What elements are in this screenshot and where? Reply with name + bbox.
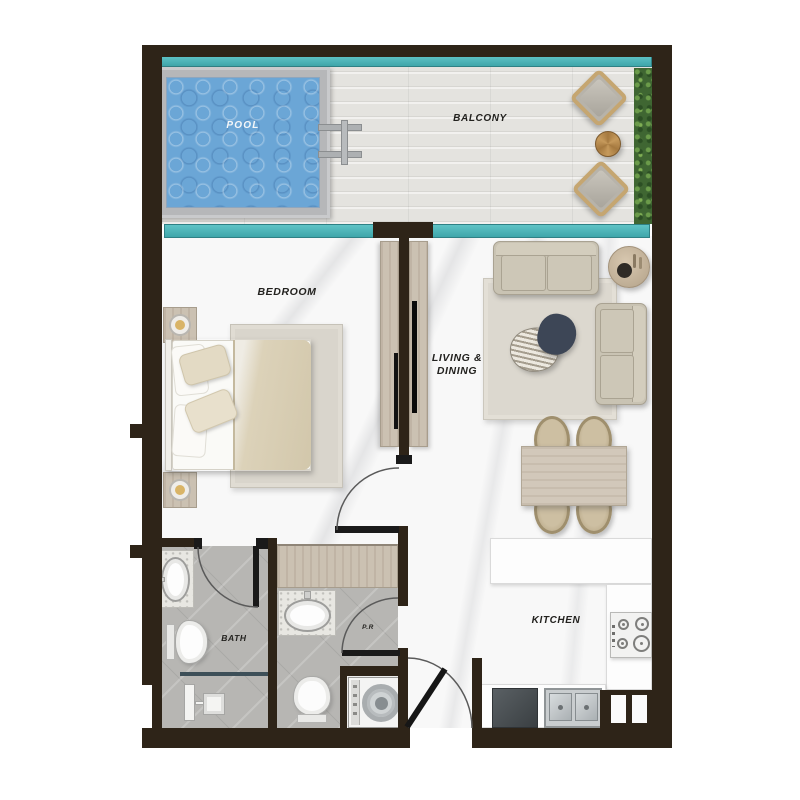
- armchair-cushion: [581, 169, 621, 209]
- wall-right: [652, 45, 672, 748]
- washer-control-panel: [351, 680, 360, 725]
- burner: [635, 617, 649, 631]
- pool-label: POOL: [186, 120, 300, 132]
- sofa-right: [595, 303, 647, 405]
- pool-ladder-bar-bottom: [318, 151, 362, 158]
- toilet-tank: [166, 624, 175, 660]
- cooktop-knobs: [612, 625, 615, 647]
- wall-left-lower: [152, 685, 162, 730]
- pr-door-leaf: [342, 650, 400, 656]
- bath-label: BATH: [204, 633, 264, 643]
- bedroom-wardrobe: [380, 241, 399, 447]
- wall-left-pilaster-top: [130, 424, 143, 438]
- entry-door-jamb: [472, 658, 482, 728]
- bed-duvet: [233, 340, 311, 470]
- shower-fixture: [184, 684, 226, 722]
- shaft-slot: [611, 695, 626, 723]
- wall-bedroom-living-cap: [396, 455, 412, 464]
- bedroom-label: BEDROOM: [227, 286, 347, 299]
- table-lamp: [169, 314, 191, 336]
- pool-ladder-rail: [341, 120, 348, 165]
- pool-ladder-bar-top: [318, 124, 362, 131]
- wall-washer-right: [398, 666, 408, 728]
- bedroom-door-leaf: [335, 526, 399, 533]
- shower-head: [203, 693, 225, 715]
- pr-sink: [284, 599, 331, 632]
- nightstand-top: [163, 307, 197, 343]
- dining-table: [521, 446, 627, 506]
- pr-faucet: [304, 591, 311, 599]
- balcony-side-table: [595, 131, 621, 157]
- tv-console: [409, 241, 428, 447]
- sofa-cushion: [600, 355, 634, 399]
- burner: [633, 635, 650, 652]
- kitchen-label: KITCHEN: [506, 615, 606, 627]
- pr-vanity-counter: [278, 590, 336, 636]
- kitchen-shaft: [600, 690, 652, 728]
- bed: [165, 339, 311, 471]
- kitchen-counter-top: [490, 538, 652, 584]
- washer-buttons: [353, 685, 357, 715]
- bath-door-leaf: [253, 546, 259, 607]
- toilet-tank: [297, 714, 327, 723]
- balcony-label: BALCONY: [410, 113, 550, 125]
- floor-plan: POOL BALCONY BEDROOM LIVING & DINING BAT…: [0, 0, 800, 800]
- living-dining-label: LIVING & DINING: [407, 352, 507, 377]
- kitchen-sink: [544, 688, 602, 728]
- sink-drain: [584, 705, 589, 710]
- wall-left-pilaster-bottom: [130, 545, 143, 558]
- washer-drum: [362, 684, 400, 722]
- sofa-top: [493, 241, 599, 295]
- pool-water: [166, 77, 320, 208]
- wall-pr-right-upper: [398, 526, 408, 606]
- planter-stem: [633, 254, 636, 268]
- wall-bath-pr: [268, 538, 277, 728]
- sofa-cushion: [547, 255, 592, 291]
- shower-rail: [184, 684, 195, 721]
- bath-door-jamb-left: [194, 538, 202, 549]
- pr-toilet: [293, 676, 331, 724]
- washing-machine: [348, 677, 399, 728]
- pr-label: P.R: [348, 624, 388, 632]
- bath-sink: [161, 557, 190, 602]
- nightstand-bottom: [163, 472, 197, 508]
- armchair-cushion: [579, 78, 619, 118]
- wall-bedroom-living: [399, 233, 409, 461]
- wall-top: [142, 45, 672, 57]
- wall-left: [142, 45, 162, 685]
- sofa-cushion: [501, 255, 546, 291]
- burner: [617, 638, 628, 649]
- cooktop: [610, 612, 652, 658]
- sink-drain: [558, 705, 563, 710]
- planter-hole: [617, 263, 632, 278]
- living-dining-label-line1: LIVING &: [407, 352, 507, 365]
- burner: [618, 619, 629, 630]
- bath-toilet: [166, 620, 208, 664]
- hedge-planter: [634, 68, 652, 224]
- wardrobe-handle: [394, 353, 398, 429]
- living-dining-label-line2: DINING: [407, 365, 507, 378]
- table-lamp: [169, 479, 191, 501]
- toilet-bowl: [293, 676, 331, 716]
- shaft-slot: [632, 695, 647, 723]
- washer-drum-core: [375, 697, 388, 710]
- wall-pr-washer-divider: [340, 676, 347, 728]
- planter-decor: [608, 246, 650, 288]
- wall-bottom-left: [142, 728, 410, 748]
- dishwasher: [492, 688, 538, 728]
- hall-closet: [277, 544, 398, 588]
- planter-stem: [639, 257, 642, 269]
- sofa-cushion: [600, 309, 634, 353]
- wall-bottom-right: [472, 728, 672, 748]
- shower-glass-partition: [180, 672, 268, 676]
